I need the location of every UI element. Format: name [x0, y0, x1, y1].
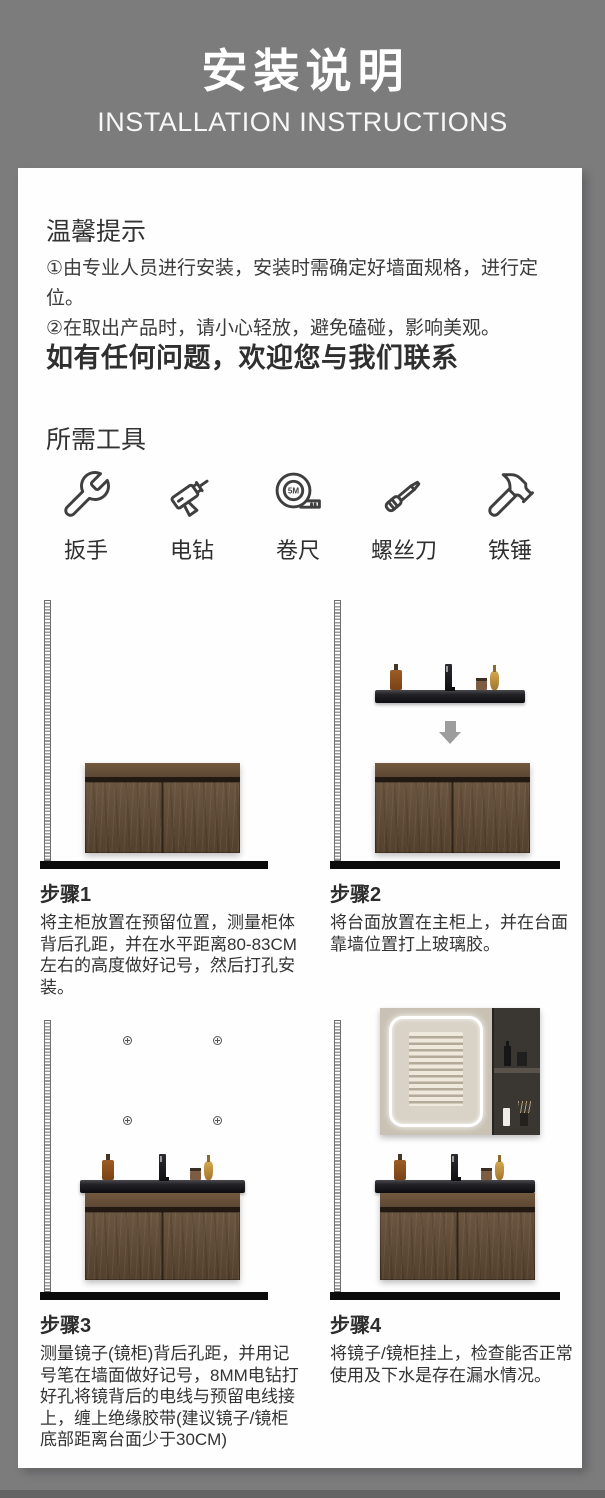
tape-measure-strip — [44, 1020, 51, 1292]
cabinet-doors — [85, 1212, 240, 1280]
tip-item: ①由专业人员进行安装，安装时需确定好墙面规格，进行定位。 — [46, 254, 560, 314]
step-1: 步骤1 将主柜放置在预留位置，测量柜体背后孔距，并在水平距离80-83CM左右的… — [40, 588, 302, 998]
step-3-figure — [40, 1008, 302, 1303]
installation-header: 安装说明 INSTALLATION INSTRUCTIONS — [0, 0, 605, 168]
step-3: 步骤3 测量镜子(镜柜)背后孔距，并用记号笔在墙面做好记号，8MM电钻打好孔将镜… — [40, 1008, 302, 1451]
tool-label: 扳手 — [44, 533, 128, 565]
tool-hammer: 铁锤 — [468, 468, 552, 565]
vanity-cabinet — [85, 1193, 240, 1280]
next-section-edge — [0, 1490, 605, 1498]
vanity-cabinet — [375, 763, 530, 853]
led-mirror — [380, 1008, 492, 1135]
hammer-icon — [483, 468, 537, 522]
faucet — [445, 664, 452, 691]
countertop — [375, 690, 525, 703]
down-arrow-icon — [439, 721, 461, 744]
step-4: 步骤4 将镜子/镜柜挂上，检查能否正常使用及下水是存在漏水情况。 — [330, 1008, 578, 1386]
cabinet-doors — [85, 782, 240, 853]
page-title: 安装说明 — [0, 48, 605, 94]
step-text: 将镜子/镜柜挂上，检查能否正常使用及下水是存在漏水情况。 — [330, 1343, 578, 1386]
cabinet-top — [85, 1193, 240, 1207]
amber-bottle — [102, 1160, 114, 1180]
contact-heading: 如有任何问题，欢迎您与我们联系 — [46, 336, 459, 375]
side-shelf-unit — [492, 1008, 540, 1135]
tape-measure-strip — [334, 1020, 341, 1292]
amber-bottle — [390, 670, 402, 690]
step-text: 将台面放置在主柜上，并在台面靠墙位置打上玻璃胶。 — [330, 912, 578, 955]
wrench-icon — [59, 468, 113, 522]
cream-jar — [481, 1171, 492, 1180]
gold-bottle — [490, 671, 499, 690]
mirror-cabinet — [380, 1008, 540, 1135]
shelf-divider — [494, 1068, 540, 1073]
countertop — [80, 1180, 245, 1193]
cream-jar — [190, 1171, 201, 1180]
step-label: 步骤3 — [40, 1309, 302, 1338]
tape-measure-strip — [44, 600, 51, 861]
tape-measure-badge: 5M — [288, 487, 299, 496]
content-card: 温馨提示 ①由专业人员进行安装，安装时需确定好墙面规格，进行定位。 ②在取出产品… — [18, 168, 582, 1468]
screw-marker — [123, 1036, 132, 1045]
floor-line — [330, 861, 560, 869]
tool-tape-measure: 5M 卷尺 — [256, 468, 340, 565]
cabinet-doors — [375, 782, 530, 853]
step-label: 步骤2 — [330, 878, 578, 907]
page-root: 安装说明 INSTALLATION INSTRUCTIONS 温馨提示 ①由专业… — [0, 0, 605, 1498]
countertop — [375, 1180, 535, 1193]
tool-label: 铁锤 — [468, 533, 552, 565]
screwdriver-icon — [377, 468, 431, 522]
tape-measure-icon: 5M — [271, 468, 325, 522]
tools-title: 所需工具 — [46, 420, 146, 456]
step-label: 步骤4 — [330, 1309, 578, 1338]
reed-diffuser-sticks — [518, 1101, 531, 1113]
towel-rack-reflection — [409, 1032, 463, 1106]
cabinet-top — [380, 1193, 535, 1207]
step-text: 测量镜子(镜柜)背后孔距，并用记号笔在墙面做好记号，8MM电钻打好孔将镜背后的电… — [40, 1343, 302, 1451]
floor-line — [40, 1292, 268, 1300]
tools-row: 扳手 电钻 5M — [44, 468, 552, 565]
tool-screwdriver: 螺丝刀 — [362, 468, 446, 565]
amber-bottle — [394, 1160, 406, 1180]
tool-wrench: 扳手 — [44, 468, 128, 565]
floor-line — [40, 861, 268, 869]
page-subtitle: INSTALLATION INSTRUCTIONS — [0, 109, 605, 136]
tape-measure-strip — [334, 600, 341, 861]
gold-bottle — [495, 1161, 504, 1180]
cabinet-top — [85, 763, 240, 777]
tool-label: 电钻 — [150, 533, 234, 565]
tool-drill: 电钻 — [150, 468, 234, 565]
faucet — [159, 1154, 166, 1181]
shelf-bottle — [517, 1052, 527, 1066]
step-1-figure — [40, 588, 302, 872]
step-label: 步骤1 — [40, 878, 302, 907]
vanity-cabinet — [380, 1193, 535, 1280]
cabinet-doors — [380, 1212, 535, 1280]
cream-jar — [476, 681, 487, 690]
faucet — [451, 1154, 458, 1181]
reed-diffuser-bottle — [520, 1113, 528, 1126]
vanity-cabinet — [85, 763, 240, 853]
drill-icon — [165, 468, 219, 522]
tool-label: 卷尺 — [256, 533, 340, 565]
gold-bottle — [204, 1161, 213, 1180]
screw-marker — [213, 1036, 222, 1045]
shelf-bottle — [504, 1046, 511, 1066]
step-text: 将主柜放置在预留位置，测量柜体背后孔距，并在水平距离80-83CM左右的高度做好… — [40, 912, 302, 998]
screw-marker — [123, 1116, 132, 1125]
tool-label: 螺丝刀 — [362, 533, 446, 565]
floor-line — [330, 1292, 560, 1300]
cabinet-top — [375, 763, 530, 777]
screw-marker — [213, 1116, 222, 1125]
step-4-figure — [330, 1008, 578, 1303]
step-2: 步骤2 将台面放置在主柜上，并在台面靠墙位置打上玻璃胶。 — [330, 588, 578, 955]
tips-title: 温馨提示 — [46, 212, 146, 248]
tips-list: ①由专业人员进行安装，安装时需确定好墙面规格，进行定位。 ②在取出产品时，请小心… — [46, 254, 560, 344]
cosmetic-tube — [503, 1108, 510, 1126]
step-2-figure — [330, 588, 578, 872]
